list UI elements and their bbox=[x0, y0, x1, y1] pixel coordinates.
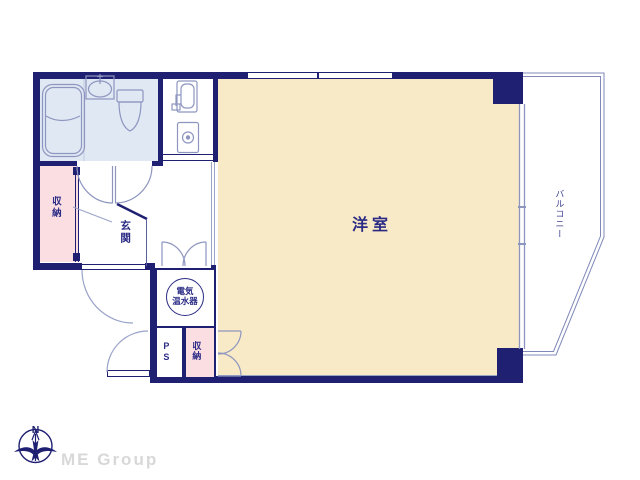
bathroom-floor bbox=[40, 79, 158, 161]
floor-plan: N 電気 温水器 収納 玄関 PS 収納 洋室 バルコニー ME Group bbox=[0, 0, 640, 480]
wall-bottom-left bbox=[33, 263, 82, 270]
entrance-inner-threshold bbox=[82, 264, 145, 270]
wall-room-left-upper bbox=[213, 72, 218, 162]
bottom-closet-label: 収納 bbox=[191, 341, 201, 361]
balcony-label: バルコニー bbox=[554, 189, 564, 239]
compass-north-label: N bbox=[32, 424, 40, 436]
entrance-label: 玄関 bbox=[119, 220, 131, 245]
left-closet-door-post-bottom bbox=[73, 253, 80, 261]
entrance-inner-door-arc bbox=[82, 270, 133, 323]
wall-bath-bottom-a bbox=[40, 161, 77, 166]
left-closet-door-line bbox=[75, 167, 79, 262]
western-room-label: 洋室 bbox=[352, 217, 392, 235]
wall-bath-bottom-b bbox=[152, 161, 163, 166]
washroom-door-threshold bbox=[163, 154, 213, 161]
entrance-door-leaf bbox=[107, 370, 150, 377]
window-top-mullion bbox=[317, 72, 319, 79]
entrance-outer-door-arc bbox=[107, 331, 148, 372]
left-closet-door-post-top bbox=[73, 167, 80, 175]
hall-room-partition bbox=[212, 162, 215, 265]
water-heater-circle: 電気 温水器 bbox=[166, 278, 204, 316]
logo-bird-shape bbox=[14, 440, 57, 462]
compass-icon: N bbox=[14, 424, 57, 463]
washroom-strip-floor bbox=[163, 79, 213, 161]
window-top bbox=[248, 72, 392, 79]
wall-bath-divider bbox=[158, 79, 163, 161]
entrance-hall-floor bbox=[78, 166, 211, 265]
left-closet-label: 収納 bbox=[49, 196, 60, 219]
wall-left bbox=[33, 72, 40, 269]
pipe-space-label: PS bbox=[161, 341, 171, 363]
water-heater-label-line2: 温水器 bbox=[172, 297, 198, 307]
wall-corner-block-bottomright bbox=[497, 348, 523, 383]
wall-corner-block-topright bbox=[493, 72, 523, 104]
logo-text: ME Group bbox=[61, 450, 158, 470]
